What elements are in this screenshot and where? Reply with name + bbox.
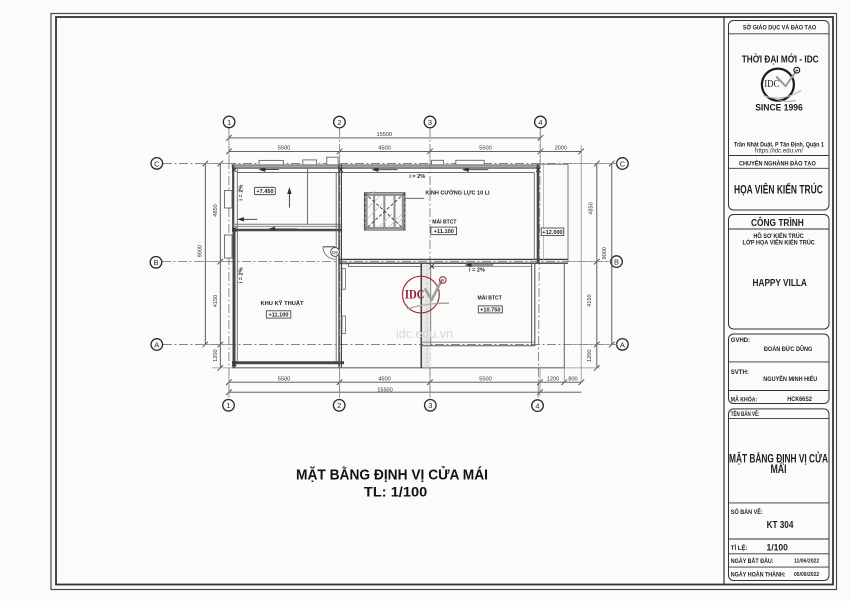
svg-text:TL: 1/100: TL: 1/100: [364, 484, 428, 500]
svg-text:SỞ GIÁO DỤC VÀ ĐÀO TẠO: SỞ GIÁO DỤC VÀ ĐÀO TẠO: [743, 25, 817, 32]
svg-text:MÁI BTCT: MÁI BTCT: [478, 294, 503, 301]
svg-text:+12.000: +12.000: [542, 230, 562, 236]
svg-text:15500: 15500: [377, 387, 393, 393]
svg-text:4150: 4150: [213, 295, 219, 307]
svg-text:1: 1: [226, 401, 230, 410]
svg-text:NGÀY HOÀN THÀNH:: NGÀY HOÀN THÀNH:: [731, 571, 786, 578]
svg-text:5500: 5500: [479, 146, 491, 152]
svg-text:+11.100: +11.100: [434, 229, 454, 235]
svg-text:4500: 4500: [378, 377, 390, 383]
svg-text:15500: 15500: [377, 132, 393, 138]
svg-text:D6: D6: [332, 250, 338, 255]
svg-text:i = 2%: i = 2%: [238, 185, 244, 201]
svg-text:KÍNH CƯỜNG LỰC 10 LI: KÍNH CƯỜNG LỰC 10 LI: [425, 189, 490, 197]
svg-text:C: C: [620, 159, 626, 168]
svg-text:Trần Nhật Duật, P Tân Định, Qu: Trần Nhật Duật, P Tân Định, Quận 1: [734, 142, 824, 149]
svg-text:CHUYÊN NGHÀNH ĐÀO TẠO: CHUYÊN NGHÀNH ĐÀO TẠO: [739, 160, 816, 168]
svg-text:4500: 4500: [378, 146, 390, 152]
svg-text:800: 800: [568, 377, 577, 383]
svg-text:3: 3: [428, 118, 432, 127]
svg-text:KHU KỸ THUẬT: KHU KỸ THUẬT: [261, 300, 305, 307]
svg-text:B: B: [614, 258, 619, 267]
svg-text:MÃ KHÓA:: MÃ KHÓA:: [731, 395, 757, 403]
svg-text:A: A: [620, 340, 625, 349]
svg-text:4850: 4850: [589, 202, 595, 214]
svg-text:+10.750: +10.750: [480, 307, 500, 313]
svg-text:1200: 1200: [587, 349, 593, 361]
svg-text:4: 4: [538, 118, 542, 127]
svg-text:5500: 5500: [278, 377, 290, 383]
svg-text:KT 304: KT 304: [767, 519, 794, 531]
svg-text:SVTH:: SVTH:: [731, 370, 749, 376]
svg-text:1200: 1200: [547, 377, 559, 383]
svg-text:TÊN BẢN VẼ:: TÊN BẢN VẼ:: [731, 410, 760, 418]
svg-text:NGÀY BẮT ĐẦU:: NGÀY BẮT ĐẦU:: [731, 557, 774, 565]
svg-text:HỒ SƠ KIẾN TRÚC: HỒ SƠ KIẾN TRÚC: [753, 233, 804, 240]
svg-text:1200: 1200: [213, 349, 219, 361]
svg-text:i = 2%: i = 2%: [409, 174, 425, 180]
svg-text:2: 2: [337, 118, 341, 127]
svg-text:SỐ BẢN VẼ:: SỐ BẢN VẼ:: [731, 509, 763, 516]
svg-text:1/100: 1/100: [767, 542, 788, 553]
svg-text:TỈ LỆ:: TỈ LỆ:: [731, 544, 748, 552]
svg-text:HCK66S2: HCK66S2: [787, 396, 812, 403]
svg-text:GVHD:: GVHD:: [731, 338, 750, 344]
svg-text:MÁI: MÁI: [770, 461, 786, 476]
svg-text:idc.edu.vn: idc.edu.vn: [396, 327, 453, 341]
svg-text:05/09/2022: 05/09/2022: [794, 572, 819, 578]
svg-text:+7.450: +7.450: [256, 189, 273, 195]
svg-text:5500: 5500: [278, 146, 290, 152]
svg-text:i = 2%: i = 2%: [469, 268, 485, 274]
svg-text:1: 1: [227, 118, 231, 127]
svg-text:11/06/2022: 11/06/2022: [794, 559, 819, 565]
svg-text:2000: 2000: [555, 146, 567, 152]
svg-text:5500: 5500: [479, 377, 491, 383]
svg-text:https://idc.edu.vn/: https://idc.edu.vn/: [755, 149, 803, 155]
svg-text:IDC: IDC: [764, 79, 779, 90]
svg-text:SINCE 1996: SINCE 1996: [755, 103, 803, 114]
svg-text:9000: 9000: [198, 245, 204, 257]
svg-text:B: B: [153, 258, 158, 267]
svg-text:+11.100: +11.100: [268, 312, 288, 318]
svg-text:4: 4: [535, 402, 539, 411]
svg-text:THỜI ĐẠI MỚI - IDC: THỜI ĐẠI MỚI - IDC: [742, 52, 819, 65]
svg-text:CÔNG TRÌNH: CÔNG TRÌNH: [751, 216, 804, 229]
svg-text:9000: 9000: [602, 247, 608, 259]
svg-text:ĐOÀN ĐỨC DŨNG: ĐOÀN ĐỨC DŨNG: [764, 346, 813, 353]
svg-text:NGUYỄN MINH HIẾU: NGUYỄN MINH HIẾU: [763, 376, 817, 383]
svg-text:2: 2: [337, 401, 341, 410]
svg-text:HAPPY VILLA: HAPPY VILLA: [753, 278, 807, 289]
svg-text:4850: 4850: [213, 204, 219, 216]
svg-text:3: 3: [428, 401, 432, 410]
svg-text:MÁI BTCT: MÁI BTCT: [432, 218, 457, 225]
svg-text:A: A: [154, 340, 159, 349]
svg-text:MẶT BẰNG ĐỊNH VỊ CỬA MÁI: MẶT BẰNG ĐỊNH VỊ CỬA MÁI: [296, 466, 488, 484]
svg-text:HỌA VIÊN KIẾN TRÚC: HỌA VIÊN KIẾN TRÚC: [734, 183, 823, 196]
svg-text:i = 2%: i = 2%: [238, 267, 244, 283]
svg-text:C: C: [154, 159, 160, 168]
svg-text:4150: 4150: [587, 294, 593, 306]
svg-text:LỚP HỌA VIÊN KIẾN TRÚC: LỚP HỌA VIÊN KIẾN TRÚC: [743, 239, 816, 247]
svg-text:IDC: IDC: [405, 287, 425, 301]
